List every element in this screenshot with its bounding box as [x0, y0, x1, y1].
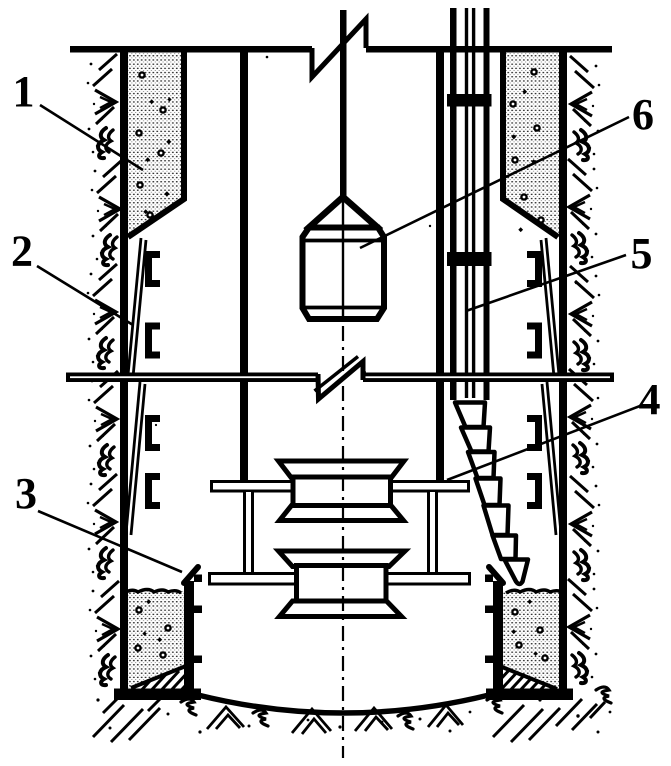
svg-text:5: 5 [631, 229, 653, 278]
svg-text:3: 3 [15, 469, 37, 518]
svg-text:4: 4 [639, 375, 661, 424]
svg-text:1: 1 [13, 67, 35, 116]
svg-text:2: 2 [11, 227, 33, 276]
svg-text:6: 6 [632, 90, 654, 139]
